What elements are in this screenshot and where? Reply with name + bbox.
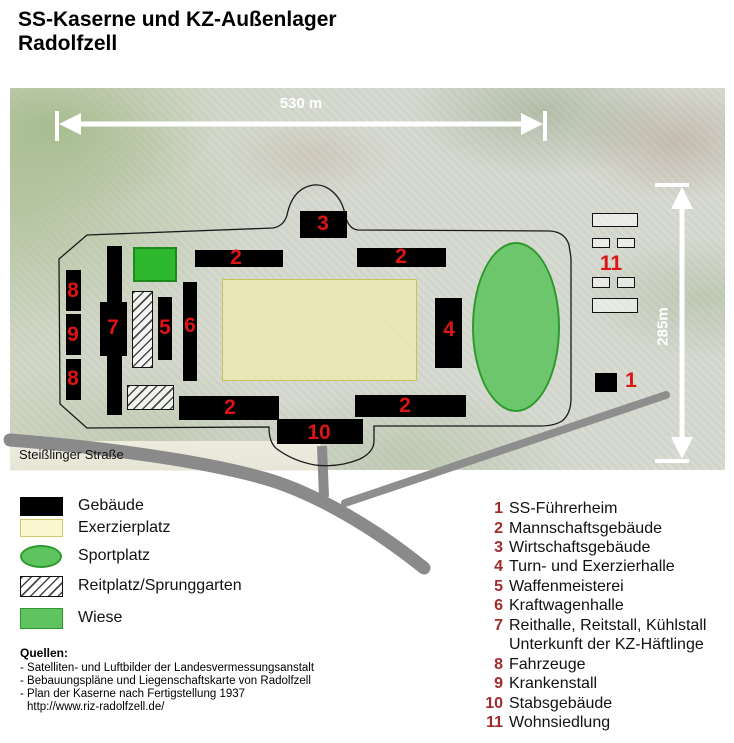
- sources-line-1: - Satelliten- und Luftbilder der Landesv…: [20, 662, 314, 675]
- legend-swatch-gebaeude: [20, 497, 63, 516]
- sources-line-2: - Bebauungspläne und Liegenschaftskarte …: [20, 675, 314, 688]
- key-text: Turn- und Exerzierhalle: [509, 558, 675, 576]
- settlement-bar-bottom: [592, 298, 638, 313]
- map-label-6: 6: [184, 314, 196, 338]
- key-text: Mannschaftsgebäude: [509, 520, 662, 538]
- map-label-1: 1: [625, 369, 637, 393]
- key-number: 5: [480, 578, 509, 596]
- key-number: 9: [480, 675, 509, 693]
- key-text: Fahrzeuge: [509, 656, 586, 674]
- sources-url: http://www.riz-radolfzell.de/: [20, 701, 314, 714]
- settlement-small-1: [592, 238, 610, 248]
- key-number: 8: [480, 656, 509, 674]
- scale-vertical-label: 285m: [655, 297, 672, 357]
- exerzierplatz-area: [222, 279, 417, 381]
- key-number: 6: [480, 597, 509, 615]
- sportplatz-ellipse: [472, 242, 560, 412]
- map-label-8a: 8: [67, 279, 79, 303]
- map-label-2-top-left: 2: [230, 246, 242, 270]
- map-label-4: 4: [443, 318, 455, 342]
- map-label-3: 3: [317, 212, 329, 236]
- map-label-8b: 8: [67, 367, 79, 391]
- key-row-7-continuation: Unterkunft der KZ-Häftlinge: [509, 636, 704, 654]
- key-number: 2: [480, 520, 509, 538]
- wiese-area: [133, 247, 177, 282]
- scale-horizontal-label: 530 m: [261, 95, 341, 112]
- map-label-5: 5: [159, 316, 171, 340]
- key-text: Waffenmeisterei: [509, 578, 624, 596]
- key-row-2: 2 Mannschaftsgebäude: [480, 520, 732, 538]
- title-line-1: SS-Kaserne und KZ-Außenlager: [18, 8, 337, 32]
- key-number: 7: [480, 617, 509, 635]
- map-label-2-bottom-right: 2: [399, 394, 411, 418]
- key-row-10: 10 Stabsgebäude: [480, 695, 732, 713]
- map-label-11: 11: [600, 252, 622, 276]
- map-label-7: 7: [107, 316, 119, 340]
- map-label-2-top-right: 2: [395, 245, 407, 269]
- reitplatz-vertical: [132, 291, 153, 368]
- key-number: 10: [480, 695, 509, 713]
- legend-swatch-reitplatz: [20, 576, 63, 597]
- key-number: 4: [480, 558, 509, 576]
- sources-heading: Quellen:: [20, 646, 314, 660]
- key-row-3: 3 Wirtschaftsgebäude: [480, 539, 732, 557]
- sources-block: Quellen: - Satelliten- und Luftbilder de…: [20, 646, 314, 714]
- key-number: 3: [480, 539, 509, 557]
- key-row-1: 1 SS-Führerheim: [480, 500, 732, 518]
- map-label-2-bottom-left: 2: [224, 396, 236, 420]
- legend-label-reitplatz: Reitplatz/Sprunggarten: [78, 577, 242, 595]
- title-line-2: Radolfzell: [18, 32, 337, 56]
- legend-swatch-wiese: [20, 608, 63, 629]
- building-1: [595, 373, 617, 392]
- map-label-10: 10: [307, 421, 330, 445]
- settlement-bar-top: [592, 213, 638, 227]
- key-text: Wohnsiedlung: [509, 714, 610, 732]
- legend-label-sportplatz: Sportplatz: [78, 547, 150, 565]
- key-number: 1: [480, 500, 509, 518]
- key-text: Wirtschaftsgebäude: [509, 539, 650, 557]
- key-row-11: 11 Wohnsiedlung: [480, 714, 732, 732]
- key-text: Stabsgebäude: [509, 695, 612, 713]
- page: SS-Kaserne und KZ-Außenlager Radolfzell: [0, 0, 734, 743]
- legend-label-gebaeude: Gebäude: [78, 497, 144, 515]
- key-row-5: 5 Waffenmeisterei: [480, 578, 732, 596]
- street-label: Steißlinger Straße: [19, 447, 124, 462]
- sources-line-3: - Plan der Kaserne nach Fertigstellung 1…: [20, 688, 314, 701]
- map-label-9: 9: [67, 323, 79, 347]
- settlement-small-2: [617, 238, 635, 248]
- legend-label-wiese: Wiese: [78, 609, 122, 627]
- key-row-6: 6 Kraftwagenhalle: [480, 597, 732, 615]
- settlement-small-3: [592, 277, 610, 288]
- page-title: SS-Kaserne und KZ-Außenlager Radolfzell: [18, 8, 337, 56]
- key-row-9: 9 Krankenstall: [480, 675, 732, 693]
- legend-swatch-sportplatz: [20, 545, 62, 568]
- key-text: SS-Führerheim: [509, 500, 617, 518]
- key-row-4: 4 Turn- und Exerzierhalle: [480, 558, 732, 576]
- reitplatz-horizontal: [127, 385, 174, 410]
- key-row-7: 7 Reithalle, Reitstall, Kühlstall: [480, 617, 732, 635]
- key-row-8: 8 Fahrzeuge: [480, 656, 732, 674]
- key-number: 11: [480, 714, 509, 732]
- key-text: Kraftwagenhalle: [509, 597, 624, 615]
- key-text: Reithalle, Reitstall, Kühlstall: [509, 617, 706, 635]
- settlement-small-4: [617, 277, 635, 288]
- key-text: Krankenstall: [509, 675, 597, 693]
- legend-swatch-exerzierplatz: [20, 519, 63, 537]
- legend-label-exerzierplatz: Exerzierplatz: [78, 519, 170, 537]
